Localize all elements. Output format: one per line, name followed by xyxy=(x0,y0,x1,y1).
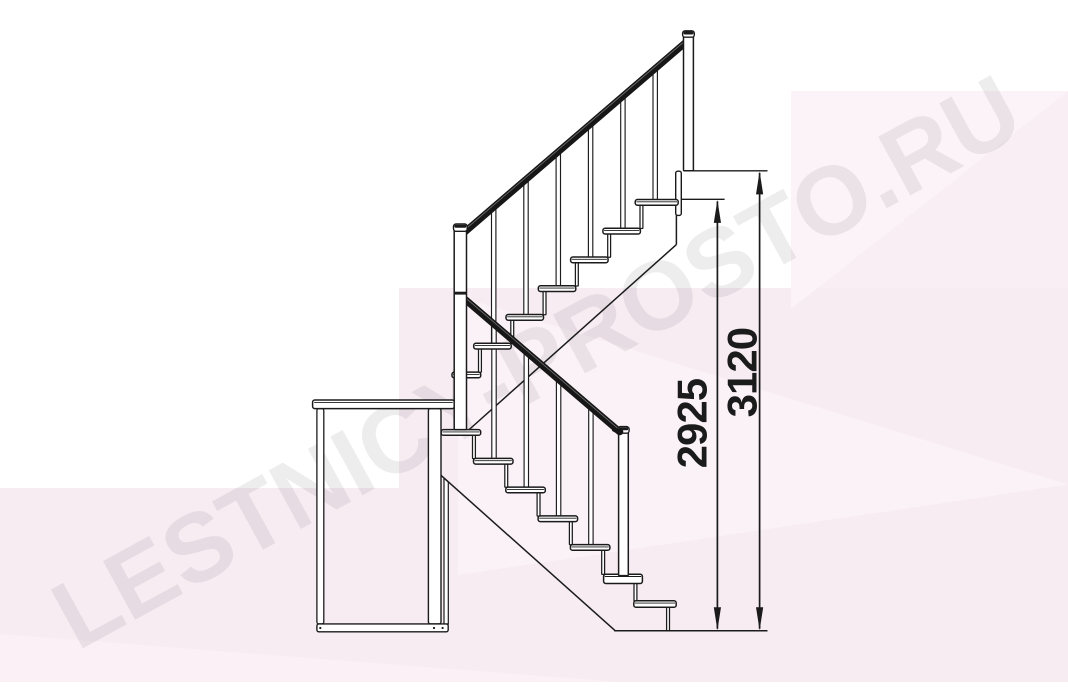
svg-text:2925: 2925 xyxy=(668,378,715,468)
svg-text:3120: 3120 xyxy=(718,328,765,417)
